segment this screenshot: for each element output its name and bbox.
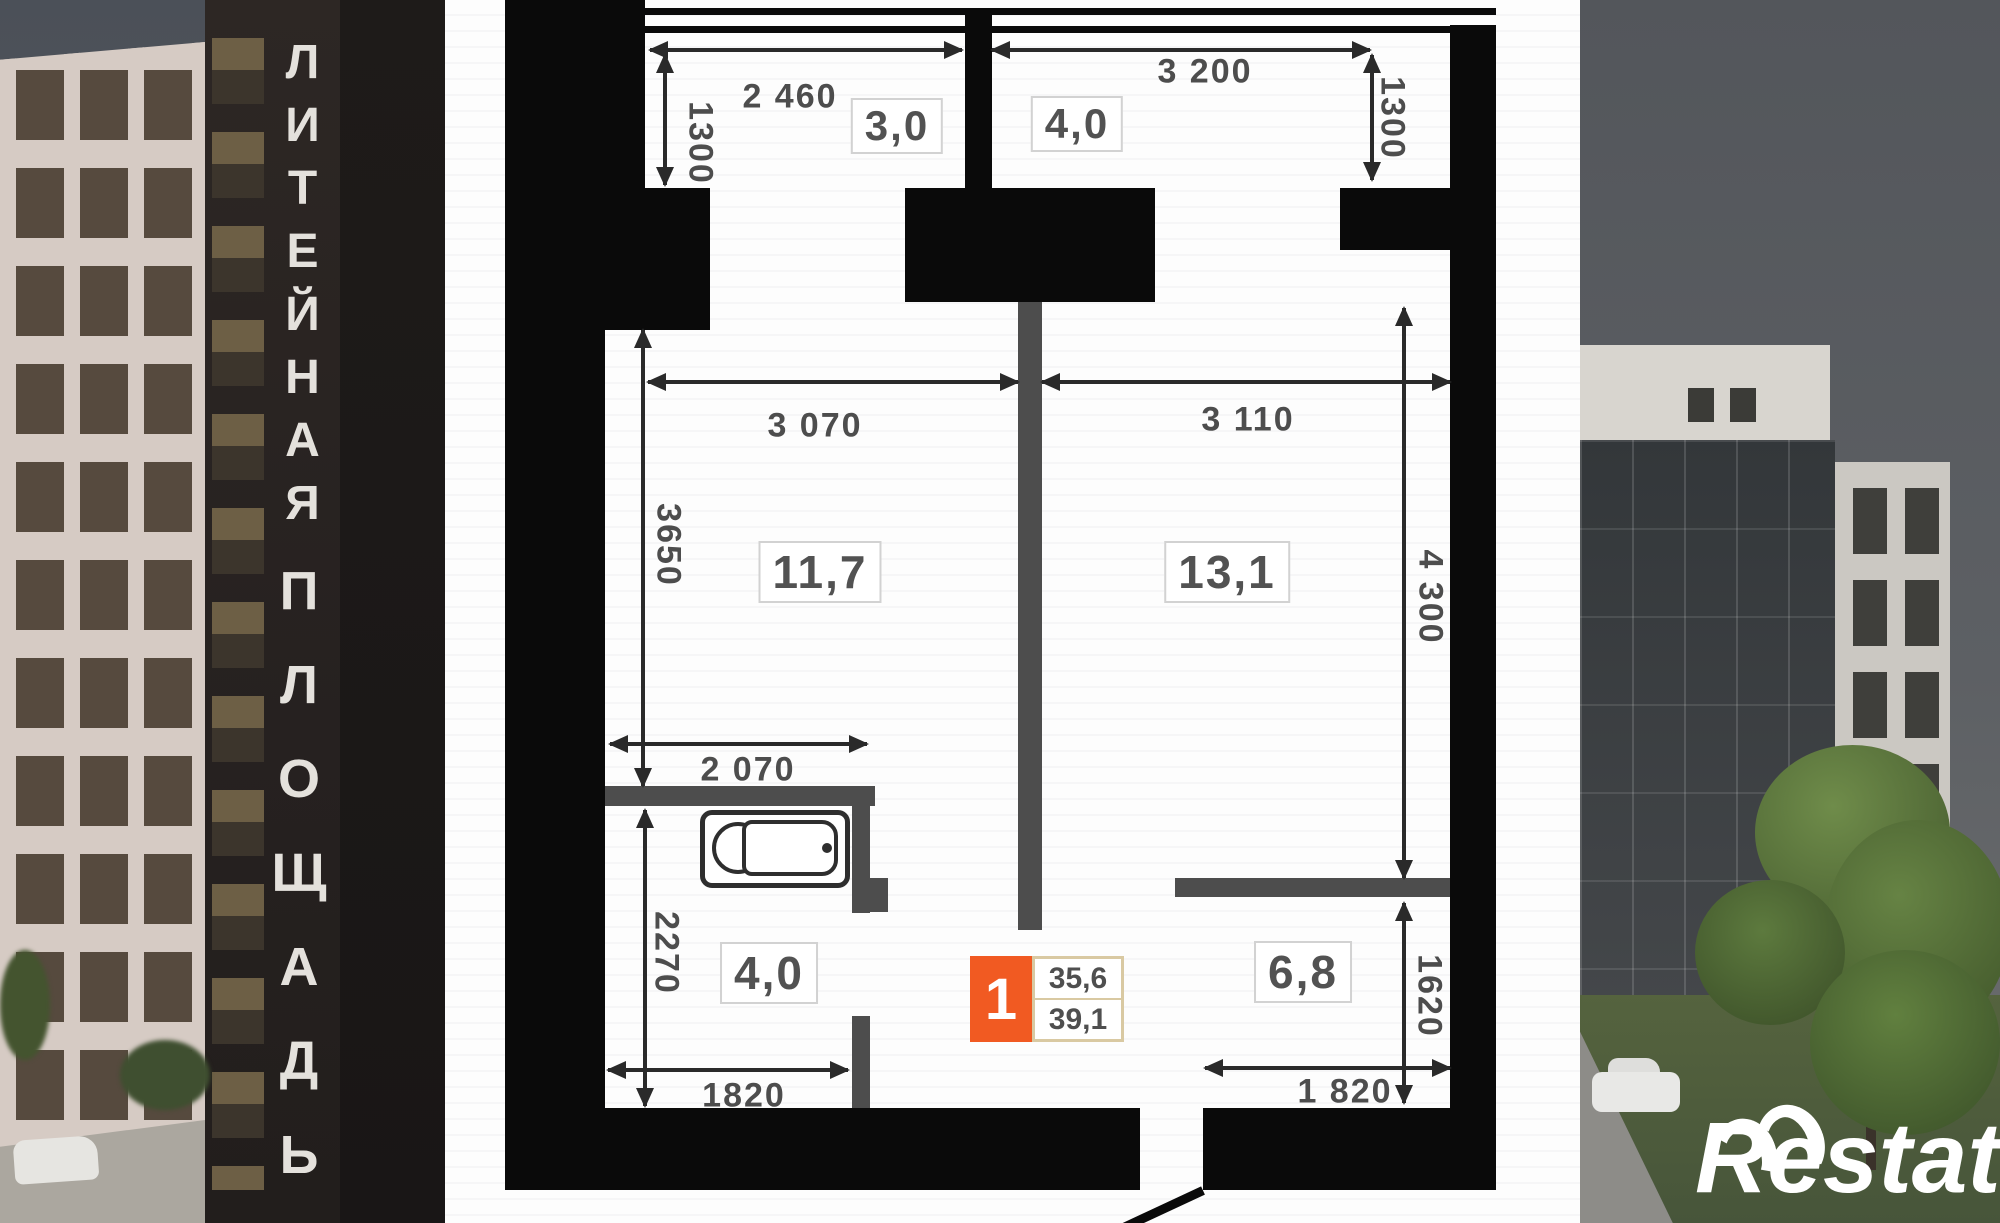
- dim-line-2070: [610, 742, 867, 746]
- right-building-photo: [1580, 0, 2000, 1223]
- dim-line-1820-left: [608, 1068, 848, 1072]
- window-pier: [1340, 188, 1450, 250]
- unit-area-total: 39,1: [1035, 1000, 1121, 1039]
- dim-label-4300: 4 300: [1411, 549, 1450, 644]
- bathroom-wall-stub: [852, 878, 888, 912]
- room-area-kitchen: 6,8: [1254, 941, 1352, 1003]
- window-pier: [605, 188, 710, 330]
- dim-label-1820-left: 1820: [702, 1077, 786, 1116]
- room-area-balcony-right: 4,0: [1031, 96, 1123, 152]
- kitchen-wall-top: [1175, 878, 1450, 897]
- dim-label-2460: 2 460: [742, 78, 837, 117]
- dim-line-2460: [650, 48, 962, 52]
- dark-building-windows: [212, 10, 264, 1190]
- dim-line-3110: [1042, 380, 1450, 384]
- dim-label-1300-left: 1300: [681, 101, 720, 185]
- dim-label-3650: 3650: [649, 503, 688, 587]
- unit-area-living: 35,6: [1035, 959, 1121, 1000]
- window: [1730, 388, 1756, 422]
- bush: [0, 950, 50, 1060]
- room-area-living-left: 11,7: [759, 541, 882, 603]
- dim-line-1820-right: [1205, 1066, 1450, 1070]
- window-pier: [905, 188, 1155, 302]
- wall-bottom-right: [1203, 1108, 1496, 1190]
- building-sign-word-2: ПЛОЩАДЬ: [268, 556, 330, 1223]
- unit-area-box: 35,6 39,1: [1032, 956, 1124, 1042]
- dark-building-side: [340, 0, 445, 1223]
- dim-label-1820-right: 1 820: [1297, 1073, 1392, 1112]
- balcony-divider-wall: [965, 15, 992, 188]
- dim-label-1620: 1620: [1410, 954, 1449, 1038]
- bush: [120, 1040, 210, 1110]
- dim-line-1620: [1402, 903, 1406, 1103]
- unit-rooms-badge: 1: [970, 956, 1032, 1042]
- balcony-rail: [645, 26, 1496, 33]
- bathtub-drain: [822, 843, 832, 853]
- dim-label-3070: 3 070: [767, 407, 862, 446]
- room-area-hall: 4,0: [720, 942, 818, 1004]
- dim-line-3200: [992, 48, 1370, 52]
- room-area-balcony-left: 3,0: [851, 98, 943, 154]
- watermark-logo: Restate: [1695, 1108, 2000, 1208]
- wall-right: [1450, 25, 1496, 1190]
- dim-label-3110: 3 110: [1201, 401, 1294, 440]
- left-building-photo: [0, 0, 445, 1223]
- dim-label-3200: 3 200: [1157, 53, 1252, 92]
- wall-bottom-left: [505, 1108, 1140, 1190]
- dim-label-1300-right: 1300: [1373, 76, 1412, 160]
- listing-image: ЛИТЕЙНАЯ ПЛОЩАДЬ Restate: [0, 0, 2000, 1223]
- building-sign-word-1: ЛИТЕЙНАЯ: [268, 36, 330, 516]
- parked-car: [13, 1135, 100, 1185]
- partition-living-rooms: [1018, 302, 1042, 930]
- dim-line-4300: [1402, 308, 1406, 878]
- dim-line-3070: [648, 380, 1018, 384]
- dim-label-2270: 2270: [647, 911, 686, 995]
- dim-line-1300-left: [663, 55, 667, 185]
- dim-line-3650: [641, 330, 645, 786]
- wall-left: [505, 0, 605, 1190]
- room-area-living-right: 13,1: [1164, 541, 1290, 603]
- hall-wall: [852, 1016, 870, 1108]
- balcony-rail: [645, 8, 1496, 15]
- window: [1688, 388, 1714, 422]
- white-car: [1592, 1072, 1680, 1112]
- dim-label-2070: 2 070: [700, 751, 795, 790]
